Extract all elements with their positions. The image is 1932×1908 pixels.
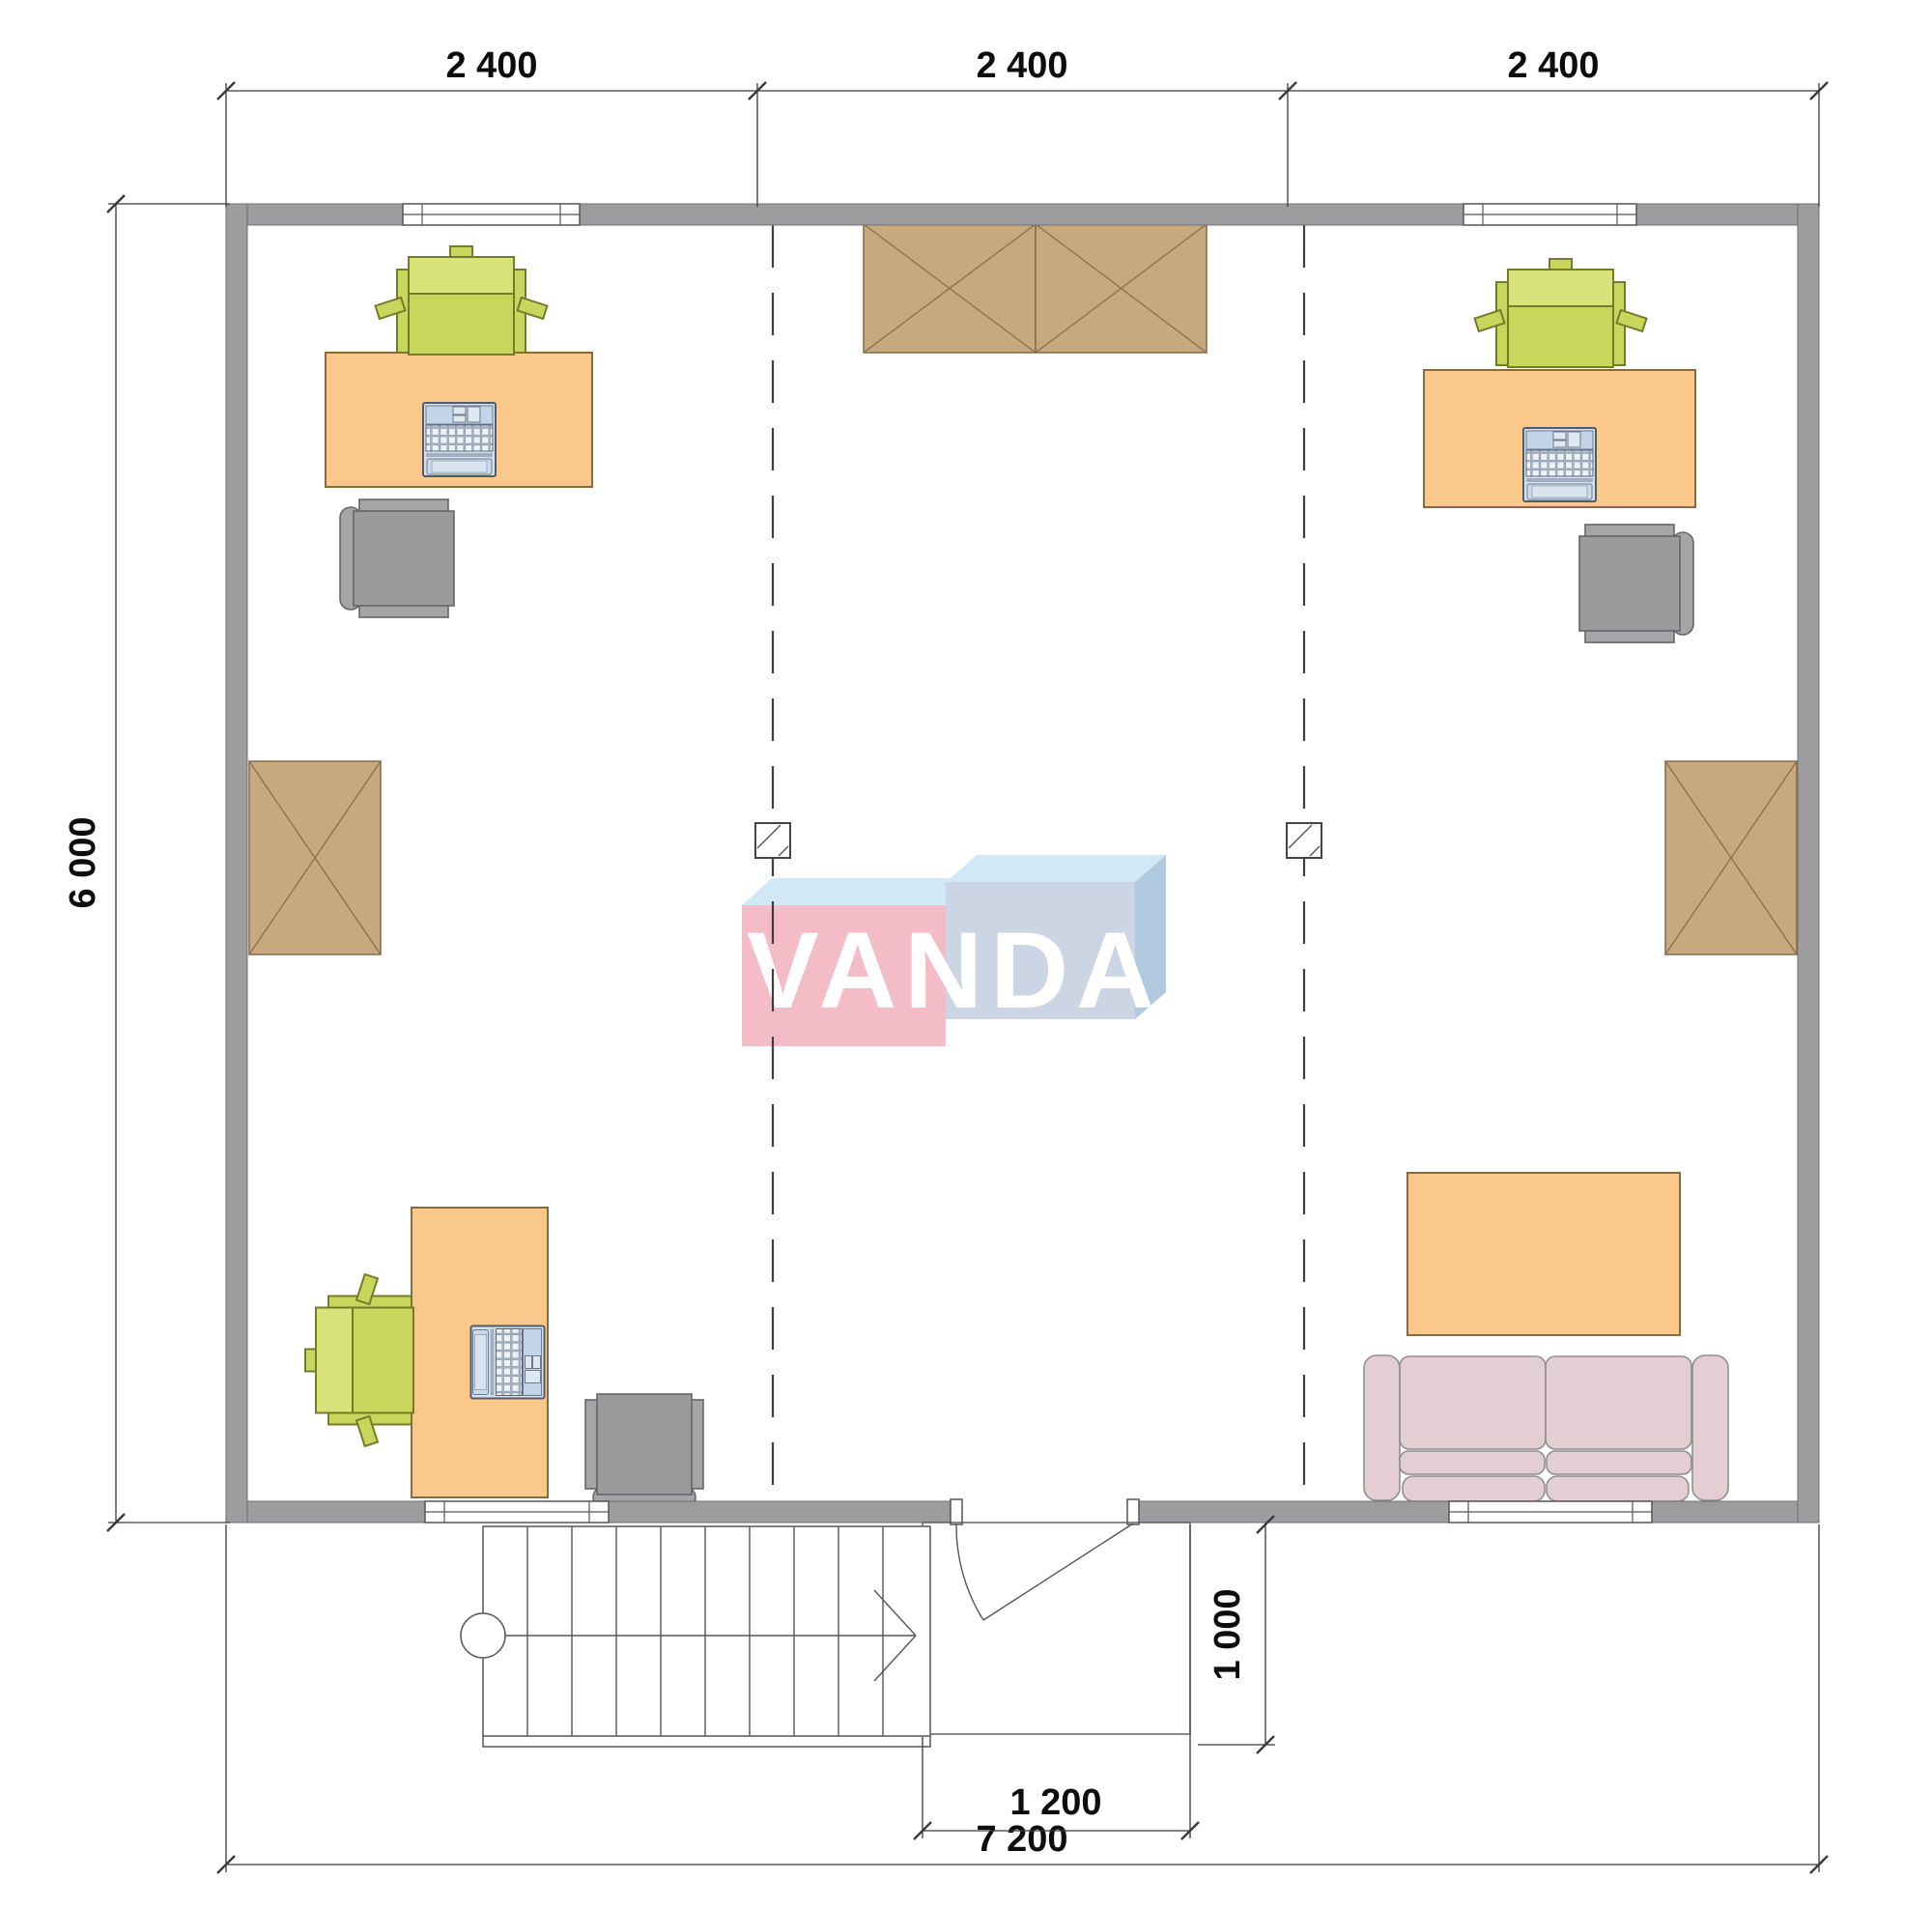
door-jamb-right — [1127, 1499, 1139, 1524]
guest-chair-gray-top-right — [1579, 525, 1693, 642]
sofa-seat-cushion-right — [1547, 1451, 1691, 1474]
cabinet-left-wall — [249, 761, 381, 954]
wall-left — [226, 204, 247, 1523]
dim-label-left: 6 000 — [63, 816, 103, 908]
sofa-front-cushion-left — [1403, 1476, 1545, 1501]
floor-plan-drawing: VANDA — [0, 0, 1932, 1908]
door-opening — [956, 1500, 1133, 1524]
laptop-top-left — [423, 403, 496, 476]
dim-label-bottom-total: 7 200 — [976, 1819, 1067, 1860]
column-symbol-right — [1287, 823, 1321, 858]
window-top-left — [403, 204, 580, 225]
watermark-text: VANDA — [747, 910, 1162, 1031]
logo-left-box-top — [742, 878, 976, 905]
window-top-right — [1463, 204, 1636, 225]
window-bottom-left — [425, 1501, 609, 1523]
stair-newel-post — [461, 1613, 505, 1658]
dim-label-top-2: 2 400 — [976, 45, 1067, 86]
logo-right-box-top — [946, 855, 1166, 882]
wall-right — [1798, 204, 1819, 1523]
cabinet-top-center — [864, 224, 1207, 353]
dim-label-top-1: 2 400 — [445, 45, 537, 86]
floor-plan-canvas: VANDA — [0, 0, 1932, 1908]
sofa-seat-cushion-left — [1400, 1451, 1545, 1474]
laptop-bottom-left — [471, 1326, 545, 1399]
cabinet-right-wall — [1665, 761, 1797, 954]
door-jamb-left — [951, 1499, 962, 1524]
sofa-front-cushion-right — [1547, 1476, 1689, 1501]
dim-label-top-3: 2 400 — [1507, 45, 1599, 86]
dim-label-entry-width: 1 200 — [1009, 1782, 1101, 1823]
dim-label-entry-depth: 1 000 — [1207, 1588, 1248, 1680]
sofa-armrest-left — [1364, 1355, 1400, 1500]
laptop-top-right — [1523, 428, 1596, 501]
vanda-watermark-logo: VANDA — [742, 855, 1166, 1046]
window-bottom-right — [1449, 1501, 1652, 1523]
staircase — [461, 1526, 930, 1747]
sofa-back-cushion-left — [1400, 1356, 1546, 1449]
guest-chair-gray-top-left — [340, 499, 454, 617]
guest-chair-gray-bottom-left — [585, 1394, 703, 1508]
sofa-back-cushion-right — [1546, 1356, 1691, 1449]
column-symbol-left — [755, 823, 790, 858]
table-bottom-right — [1407, 1173, 1680, 1335]
sofa-armrest-right — [1692, 1355, 1728, 1500]
